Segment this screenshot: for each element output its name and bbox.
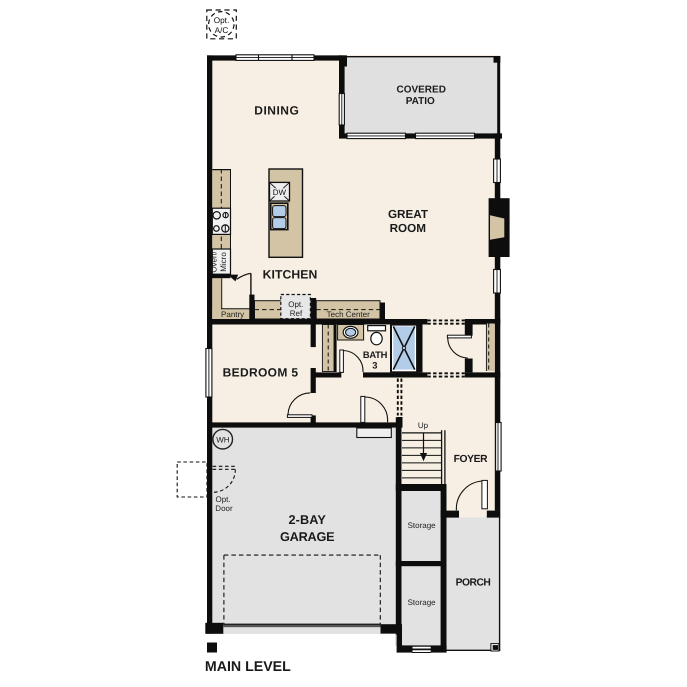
svg-text:3: 3 [372, 360, 377, 371]
svg-text:BATH: BATH [363, 349, 388, 360]
svg-text:A/C: A/C [215, 26, 229, 35]
svg-text:Opt.: Opt. [216, 495, 231, 504]
svg-text:Ref: Ref [290, 309, 303, 318]
svg-text:FOYER: FOYER [454, 454, 488, 465]
svg-text:Door: Door [215, 504, 233, 513]
svg-text:Up: Up [418, 421, 429, 430]
svg-text:WH: WH [216, 435, 230, 444]
svg-text:2-BAY: 2-BAY [288, 513, 326, 527]
svg-text:Storage: Storage [408, 598, 437, 607]
svg-text:DW: DW [273, 188, 287, 197]
svg-text:Opt.: Opt. [288, 300, 303, 309]
svg-text:ROOM: ROOM [390, 222, 426, 235]
svg-text:GREAT: GREAT [388, 208, 429, 221]
svg-text:GARAGE: GARAGE [280, 530, 335, 544]
svg-text:Opt.: Opt. [214, 16, 229, 25]
svg-text:Storage: Storage [408, 521, 437, 530]
svg-text:MAIN LEVEL: MAIN LEVEL [205, 659, 291, 675]
svg-text:BEDROOM 5: BEDROOM 5 [223, 365, 299, 379]
svg-text:COVERED: COVERED [396, 84, 445, 95]
svg-text:PORCH: PORCH [456, 577, 491, 588]
svg-text:KITCHEN: KITCHEN [263, 267, 318, 281]
svg-text:Oven/: Oven/ [209, 251, 218, 273]
svg-text:Tech Center: Tech Center [327, 310, 370, 319]
svg-text:DINING: DINING [254, 103, 299, 117]
svg-text:PATIO: PATIO [406, 96, 435, 107]
svg-text:Micro: Micro [219, 252, 228, 272]
svg-text:Pantry: Pantry [221, 310, 244, 319]
